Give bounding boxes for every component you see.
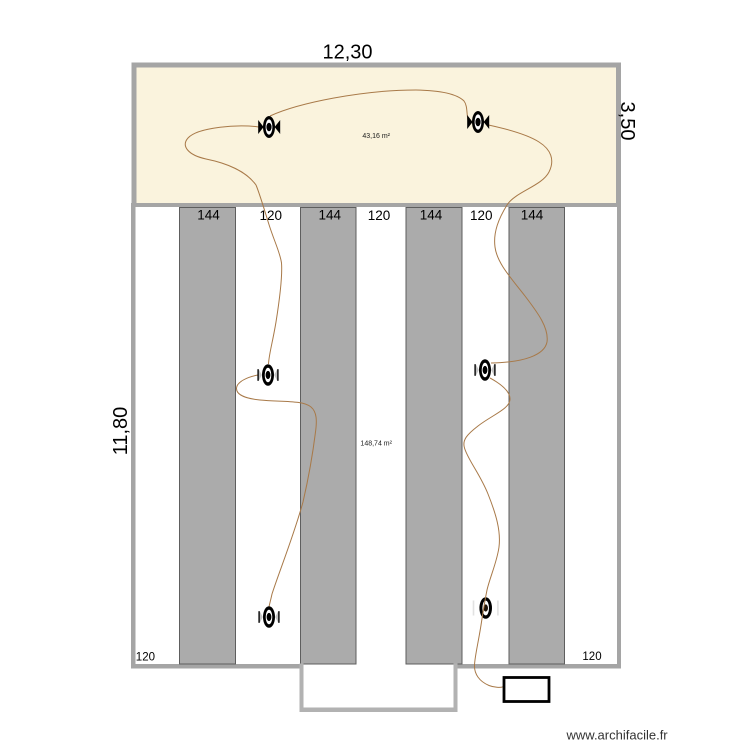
svg-text:144: 144	[521, 208, 544, 223]
svg-text:11,80: 11,80	[110, 407, 132, 456]
svg-text:144: 144	[319, 208, 342, 223]
svg-text:144: 144	[420, 208, 443, 223]
svg-text:120: 120	[582, 651, 601, 663]
svg-text:144: 144	[197, 208, 220, 223]
svg-text:43,16 m²: 43,16 m²	[362, 133, 390, 140]
svg-text:148,74 m²: 148,74 m²	[360, 441, 392, 448]
svg-text:3,50: 3,50	[616, 102, 638, 141]
svg-text:120: 120	[136, 652, 155, 664]
svg-text:120: 120	[260, 208, 283, 223]
svg-text:www.archifacile.fr: www.archifacile.fr	[566, 728, 669, 743]
svg-text:12,30: 12,30	[322, 42, 372, 64]
svg-text:120: 120	[368, 208, 391, 223]
svg-text:120: 120	[470, 208, 493, 223]
